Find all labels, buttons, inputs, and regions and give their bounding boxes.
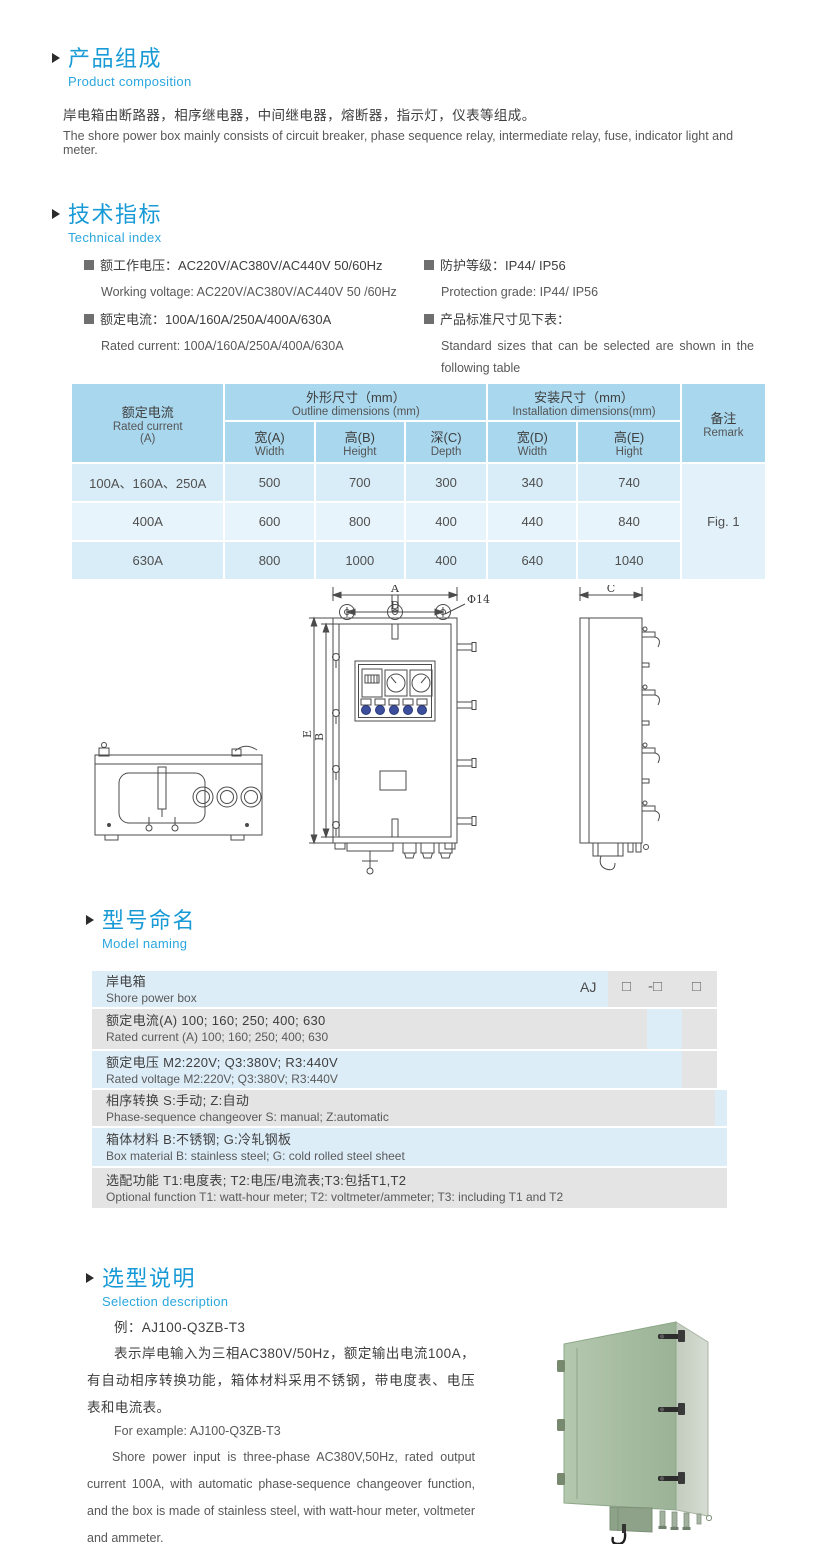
cell-value: 740 — [578, 464, 679, 501]
section-composition-header: 产品组成 Product composition — [52, 46, 191, 89]
header-height-e: 高(E)Hight — [578, 422, 679, 462]
naming-row: 相序转换 S:手动; Z:自动 Phase-sequence changeove… — [106, 1092, 389, 1126]
naming-row-cn: 额定电流(A) 100; 160; 250; 400; 630 — [106, 1012, 328, 1029]
product-photo — [552, 1284, 797, 1544]
spec-list-right: 防护等级：IP44/ IP56 Protection grade: IP44/ … — [424, 252, 754, 379]
spec-list-left: 额工作电压：AC220V/AC380V/AC440V 50/60Hz Worki… — [84, 252, 397, 360]
selection-example-cn: 例：AJ100-Q3ZB-T3 — [114, 1316, 245, 1336]
header-remark: 备注 Remark — [682, 384, 765, 462]
meter-panel — [355, 661, 435, 721]
drawing-front-view — [309, 587, 476, 874]
header-rated-current: 额定电流 Rated current (A) — [72, 384, 223, 462]
header-en: Rated current — [72, 421, 223, 433]
selection-body-cn: 表示岸电输入为三相AC380V/50Hz，额定输出电流100A，有自动相序转换功… — [87, 1340, 475, 1421]
model-code-prefix: AJ — [580, 979, 596, 995]
latch-icons — [642, 627, 659, 821]
section-arrow-icon — [52, 209, 60, 219]
section-title-cn: 选型说明 — [102, 1266, 228, 1291]
header-cn: 宽(A) — [225, 427, 313, 446]
header-width-a: 宽(A)Width — [225, 422, 313, 462]
section-title-en: Technical index — [68, 230, 162, 245]
cell-value: 400 — [406, 542, 486, 579]
selection-body-en: Shore power input is three-phase AC380V,… — [87, 1444, 475, 1552]
bullet-square-icon — [84, 260, 94, 270]
bullet-square-icon — [424, 260, 434, 270]
cell-value: 440 — [488, 503, 576, 540]
section-title-cn: 产品组成 — [68, 46, 191, 71]
cell-remark: Fig. 1 — [682, 464, 765, 579]
header-cn: 备注 — [682, 408, 765, 427]
header-en: Depth — [406, 446, 486, 458]
section-selection-header: 选型说明 Selection description — [86, 1266, 228, 1309]
selection-example-en: For example: AJ100-Q3ZB-T3 — [114, 1424, 281, 1438]
section-arrow-icon — [86, 915, 94, 925]
naming-row: 额定电压 M2:220V; Q3:380V; R3:440V Rated vol… — [106, 1054, 338, 1088]
cell-value: 700 — [316, 464, 404, 501]
bullet-square-icon — [424, 314, 434, 324]
header-cn: 深(C) — [406, 427, 486, 446]
spec-item-en: Working voltage: AC220V/AC380V/AC440V 50… — [84, 279, 397, 306]
cell-value: 500 — [225, 464, 313, 501]
datasheet-page: 产品组成 Product composition 岸电箱由断路器，相序继电器，中… — [0, 0, 830, 1568]
spec-item-cn: 防护等级：IP44/ IP56 — [440, 258, 566, 273]
cell-value: 800 — [225, 542, 313, 579]
cell-value: 840 — [578, 503, 679, 540]
dim-label-d: D — [391, 599, 400, 612]
spec-item: 额工作电压：AC220V/AC380V/AC440V 50/60Hz — [84, 252, 397, 279]
naming-row-en: Optional function T1: watt-hour meter; T… — [106, 1189, 563, 1206]
section-title-en: Model naming — [102, 936, 196, 951]
section-title-cn: 型号命名 — [102, 908, 196, 933]
table-row: 630A 800 1000 400 640 1040 — [72, 542, 765, 579]
header-en: Installation dimensions(mm) — [488, 406, 680, 418]
section-arrow-icon — [52, 53, 60, 63]
cell-value: 400 — [406, 503, 486, 540]
spec-item: 产品标准尺寸见下表： — [424, 306, 754, 333]
hinge-icons — [333, 654, 340, 837]
cell-value: 1040 — [578, 542, 679, 579]
table-row: 400A 600 800 400 440 840 — [72, 503, 765, 540]
header-outline-dimensions: 外形尺寸（mm） Outline dimensions (mm) — [225, 384, 486, 420]
drawing-bottom-view — [95, 743, 262, 841]
spec-item: 额定电流：100A/160A/250A/400A/630A — [84, 306, 397, 333]
section-arrow-icon — [86, 1273, 94, 1283]
spec-item-cn: 额工作电压：AC220V/AC380V/AC440V 50/60Hz — [100, 258, 383, 273]
cell-value: 640 — [488, 542, 576, 579]
naming-row-en: Phase-sequence changeover S: manual; Z:a… — [106, 1109, 389, 1126]
model-naming-diagram: AJ □ -□ □ 岸电箱 Shore power box 额定电流(A) 10… — [92, 971, 727, 1211]
header-cn: 高(E) — [578, 427, 679, 446]
dim-label-c: C — [607, 585, 615, 595]
naming-row-cn: 相序转换 S:手动; Z:自动 — [106, 1092, 389, 1109]
model-code-box-1: □ — [622, 978, 631, 995]
dim-label-a: A — [390, 585, 400, 595]
naming-row: 岸电箱 Shore power box — [106, 973, 197, 1007]
cell-value: 800 — [316, 503, 404, 540]
spec-item-en: Standard sizes that can be selected are … — [424, 333, 754, 379]
header-en: Hight — [578, 446, 679, 458]
header-height-b: 高(B)Height — [316, 422, 404, 462]
naming-col-bg — [682, 1009, 717, 1049]
model-code-box-2: -□ — [648, 978, 662, 995]
header-en: Height — [316, 446, 404, 458]
naming-col-bg — [715, 1090, 727, 1126]
section-naming-header: 型号命名 Model naming — [86, 908, 196, 951]
spec-item-en: Protection grade: IP44/ IP56 — [424, 279, 754, 306]
header-cn: 额定电流 — [72, 402, 223, 421]
section-technical-header: 技术指标 Technical index — [52, 202, 162, 245]
cell-value: 1000 — [316, 542, 404, 579]
header-installation-dimensions: 安装尺寸（mm） Installation dimensions(mm) — [488, 384, 680, 420]
drawing-side-view — [580, 587, 659, 870]
latch-icons — [457, 643, 476, 826]
cell-value: 300 — [406, 464, 486, 501]
header-unit: (A) — [72, 433, 223, 445]
header-cn: 外形尺寸（mm） — [225, 387, 486, 406]
spec-item-en: Rated current: 100A/160A/250A/400A/630A — [84, 333, 397, 360]
section-title-en: Selection description — [102, 1294, 228, 1309]
enclosure-box — [557, 1322, 712, 1544]
dim-label-b: B — [313, 733, 326, 741]
naming-row-en: Box material B: stainless steel; G: cold… — [106, 1148, 405, 1165]
header-cn: 高(B) — [316, 427, 404, 446]
section-title-en: Product composition — [68, 74, 191, 89]
naming-row-en: Rated voltage M2:220V; Q3:380V; R3:440V — [106, 1071, 338, 1088]
naming-row: 选配功能 T1:电度表; T2:电压/电流表;T3:包括T1,T2 Option… — [106, 1172, 563, 1206]
cell-current: 630A — [72, 542, 223, 579]
naming-col-bg — [682, 1051, 717, 1088]
header-en: Outline dimensions (mm) — [225, 406, 486, 418]
naming-row: 箱体材料 B:不锈钢; G:冷轧钢板 Box material B: stain… — [106, 1131, 405, 1165]
naming-col-bg — [647, 1009, 682, 1049]
bullet-square-icon — [84, 314, 94, 324]
naming-row-en: Rated current (A) 100; 160; 250; 400; 63… — [106, 1029, 328, 1046]
naming-row-cn: 岸电箱 — [106, 973, 197, 990]
spec-item-cn: 产品标准尺寸见下表： — [440, 312, 570, 327]
spec-item-cn: 额定电流：100A/160A/250A/400A/630A — [100, 312, 331, 327]
naming-row-cn: 箱体材料 B:不锈钢; G:冷轧钢板 — [106, 1131, 405, 1148]
table-row: 100A、160A、250A 500 700 300 340 740 Fig. … — [72, 464, 765, 501]
dimension-table: 额定电流 Rated current (A) 外形尺寸（mm） Outline … — [70, 382, 767, 581]
spec-item: 防护等级：IP44/ IP56 — [424, 252, 754, 279]
indicator-lights — [361, 699, 427, 715]
cell-current: 100A、160A、250A — [72, 464, 223, 501]
composition-text-en: The shore power box mainly consists of c… — [63, 129, 768, 157]
technical-drawing: A D Φ14 E B C — [85, 585, 770, 885]
header-en: Remark — [682, 427, 765, 439]
cell-current: 400A — [72, 503, 223, 540]
header-depth-c: 深(C)Depth — [406, 422, 486, 462]
naming-row-cn: 额定电压 M2:220V; Q3:380V; R3:440V — [106, 1054, 338, 1071]
header-en: Width — [225, 446, 313, 458]
composition-text-cn: 岸电箱由断路器，相序继电器，中间继电器，熔断器，指示灯，仪表等组成。 — [63, 104, 536, 124]
dim-label-phi: Φ14 — [467, 593, 490, 606]
cell-value: 600 — [225, 503, 313, 540]
header-cn: 安装尺寸（mm） — [488, 387, 680, 406]
header-cn: 宽(D) — [488, 427, 576, 446]
header-en: Width — [488, 446, 576, 458]
header-width-d: 宽(D)Width — [488, 422, 576, 462]
naming-row: 额定电流(A) 100; 160; 250; 400; 630 Rated cu… — [106, 1012, 328, 1046]
model-code-box-3: □ — [692, 978, 701, 995]
section-title-cn: 技术指标 — [68, 202, 162, 227]
naming-row-cn: 选配功能 T1:电度表; T2:电压/电流表;T3:包括T1,T2 — [106, 1172, 563, 1189]
cell-value: 340 — [488, 464, 576, 501]
naming-row-en: Shore power box — [106, 990, 197, 1007]
